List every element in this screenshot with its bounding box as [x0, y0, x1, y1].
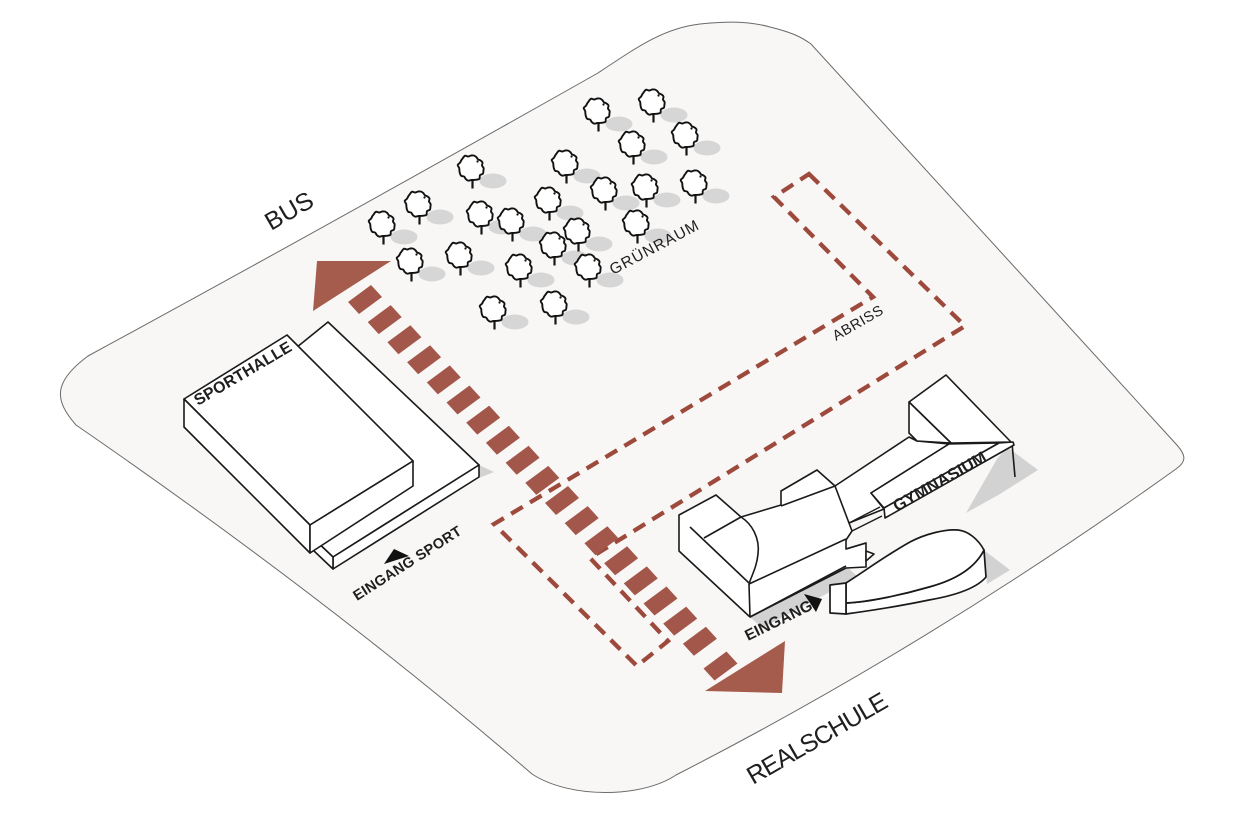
svg-text:BUS: BUS	[260, 186, 319, 236]
